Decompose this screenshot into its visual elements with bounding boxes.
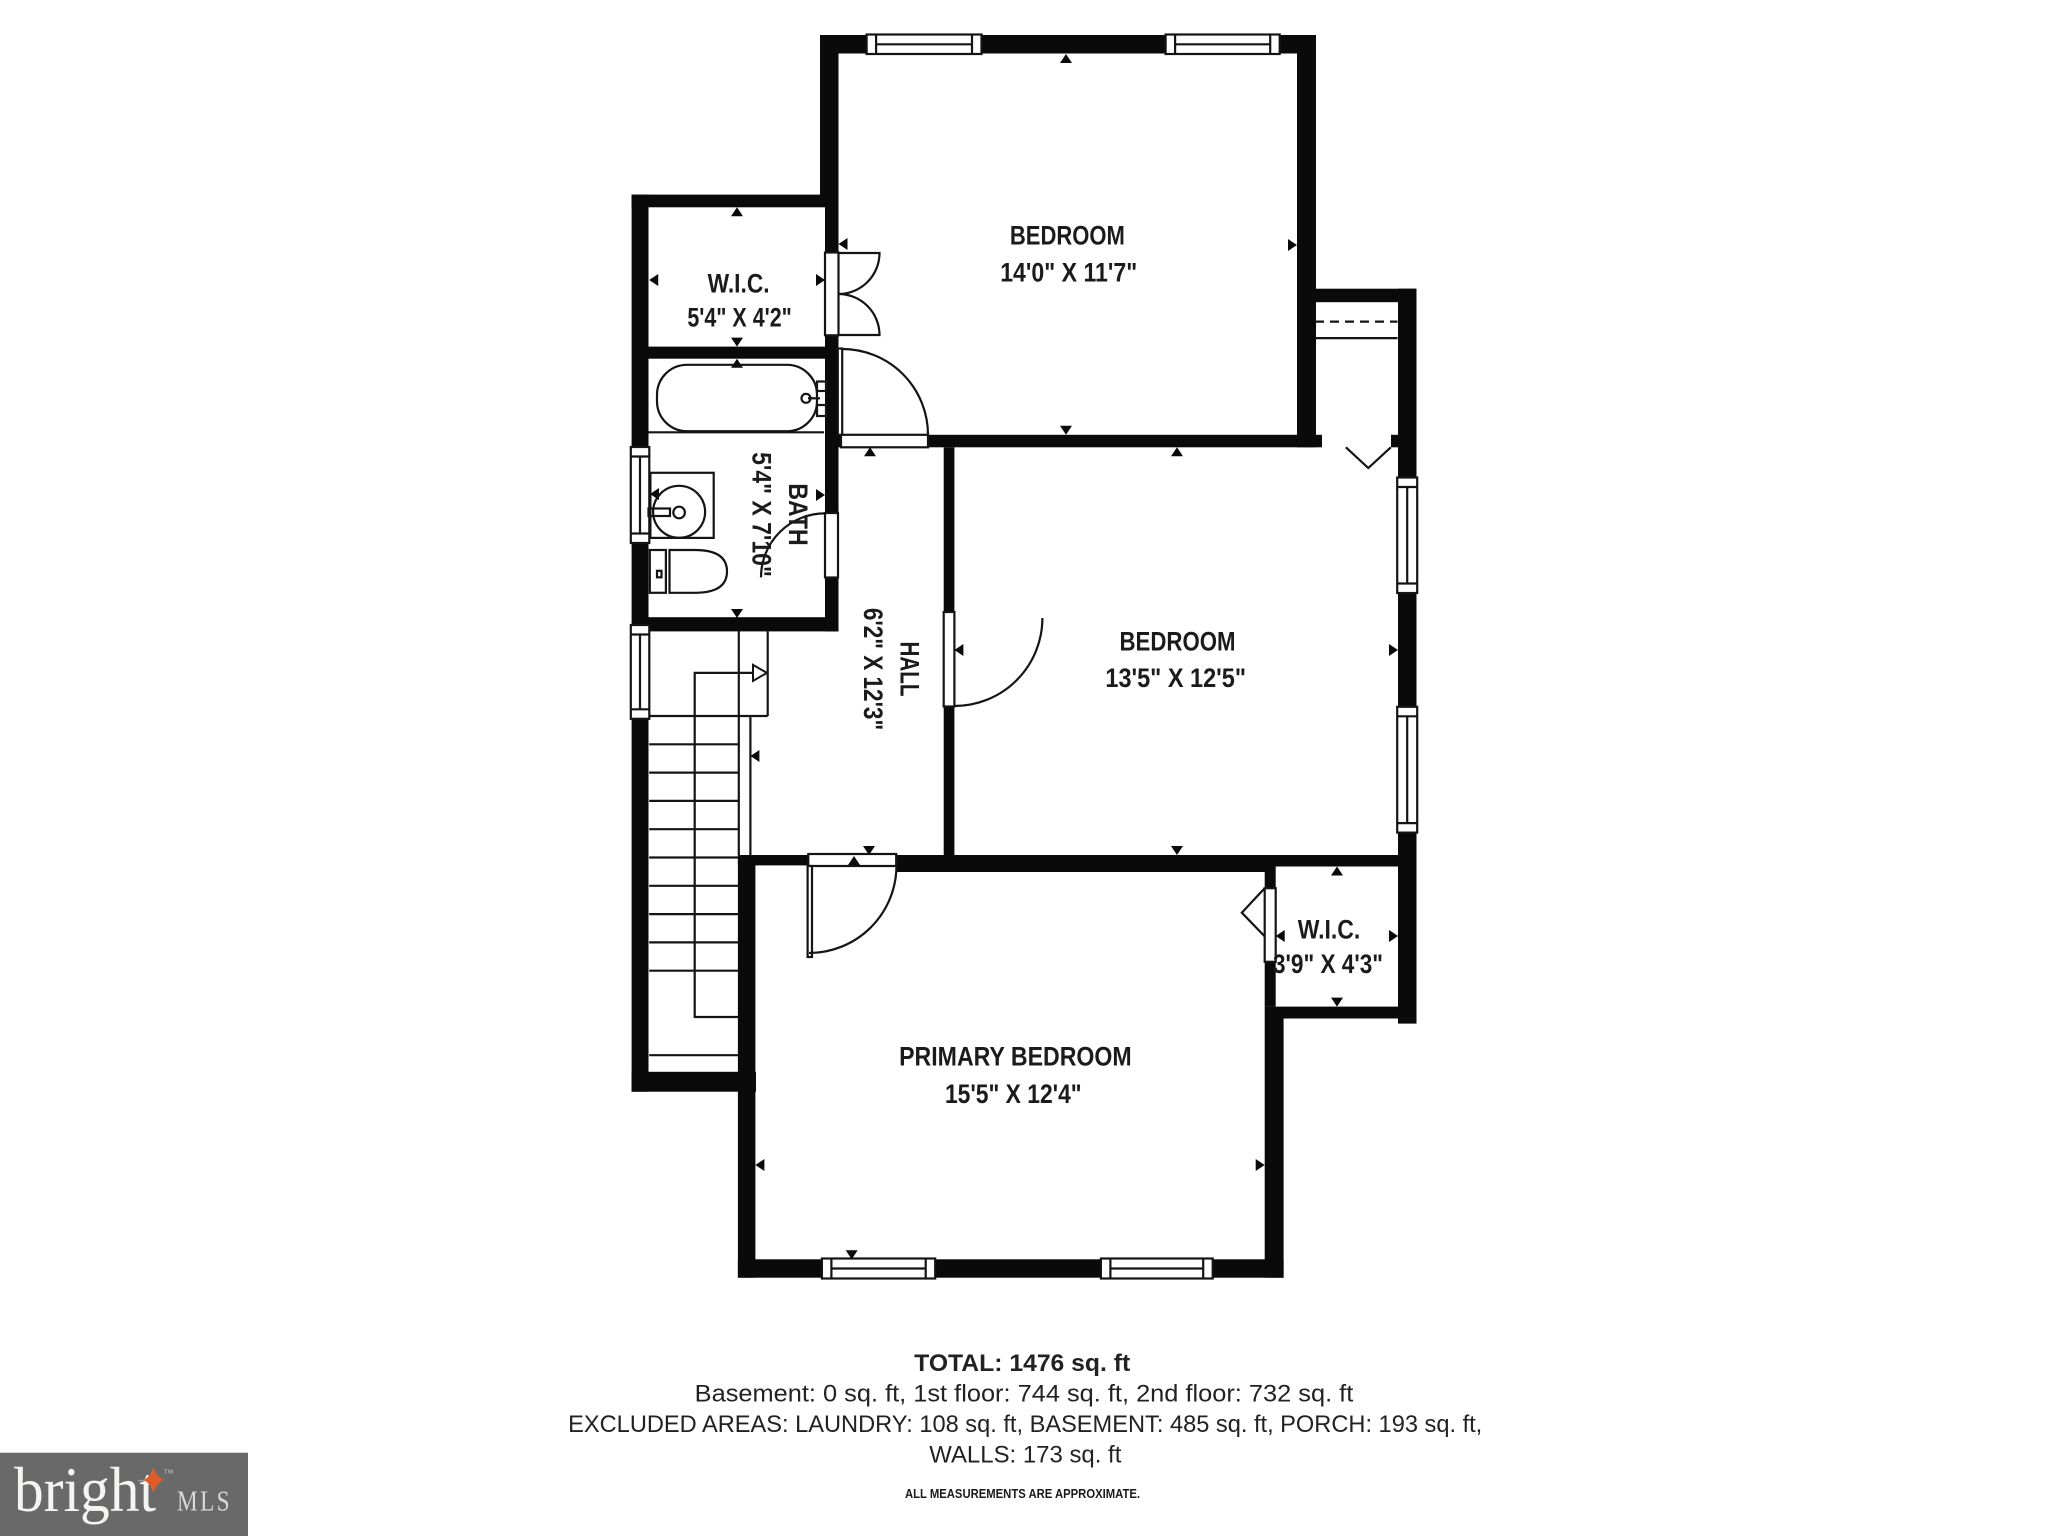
- svg-text:13'5" X 12'5": 13'5" X 12'5": [1105, 663, 1246, 693]
- svg-text:ALL MEASUREMENTS ARE APPROXIMA: ALL MEASUREMENTS ARE APPROXIMATE.: [905, 1487, 1140, 1501]
- svg-text:HALL: HALL: [895, 641, 925, 696]
- svg-text:PRIMARY BEDROOM: PRIMARY BEDROOM: [899, 1042, 1132, 1072]
- svg-text:3'9" X 4'3": 3'9" X 4'3": [1273, 949, 1383, 979]
- svg-text:WALLS: 173 sq. ft: WALLS: 173 sq. ft: [929, 1442, 1121, 1469]
- svg-text:EXCLUDED AREAS: LAUNDRY: 108 s: EXCLUDED AREAS: LAUNDRY: 108 sq. ft, BAS…: [568, 1411, 1482, 1438]
- svg-text:14'0" X 11'7": 14'0" X 11'7": [1000, 258, 1137, 288]
- svg-text:™: ™: [164, 1468, 174, 1479]
- svg-text:BATH: BATH: [783, 483, 813, 545]
- svg-text:W.I.C.: W.I.C.: [708, 269, 770, 299]
- svg-text:BEDROOM: BEDROOM: [1010, 221, 1125, 251]
- svg-text:5'4" X 4'2": 5'4" X 4'2": [687, 303, 792, 333]
- svg-text:6'2" X 12'3": 6'2" X 12'3": [858, 608, 888, 730]
- svg-text:15'5" X 12'4": 15'5" X 12'4": [945, 1079, 1082, 1109]
- svg-text:Basement: 0 sq. ft, 1st floor:: Basement: 0 sq. ft, 1st floor: 744 sq. f…: [695, 1381, 1354, 1408]
- svg-text:W.I.C.: W.I.C.: [1298, 915, 1361, 945]
- svg-text:bright: bright: [14, 1454, 156, 1525]
- svg-text:5'4" X 7'10": 5'4" X 7'10": [747, 452, 777, 577]
- svg-text:TOTAL: 1476 sq. ft: TOTAL: 1476 sq. ft: [914, 1350, 1130, 1377]
- svg-text:MLS: MLS: [177, 1486, 232, 1518]
- svg-text:BEDROOM: BEDROOM: [1120, 627, 1236, 657]
